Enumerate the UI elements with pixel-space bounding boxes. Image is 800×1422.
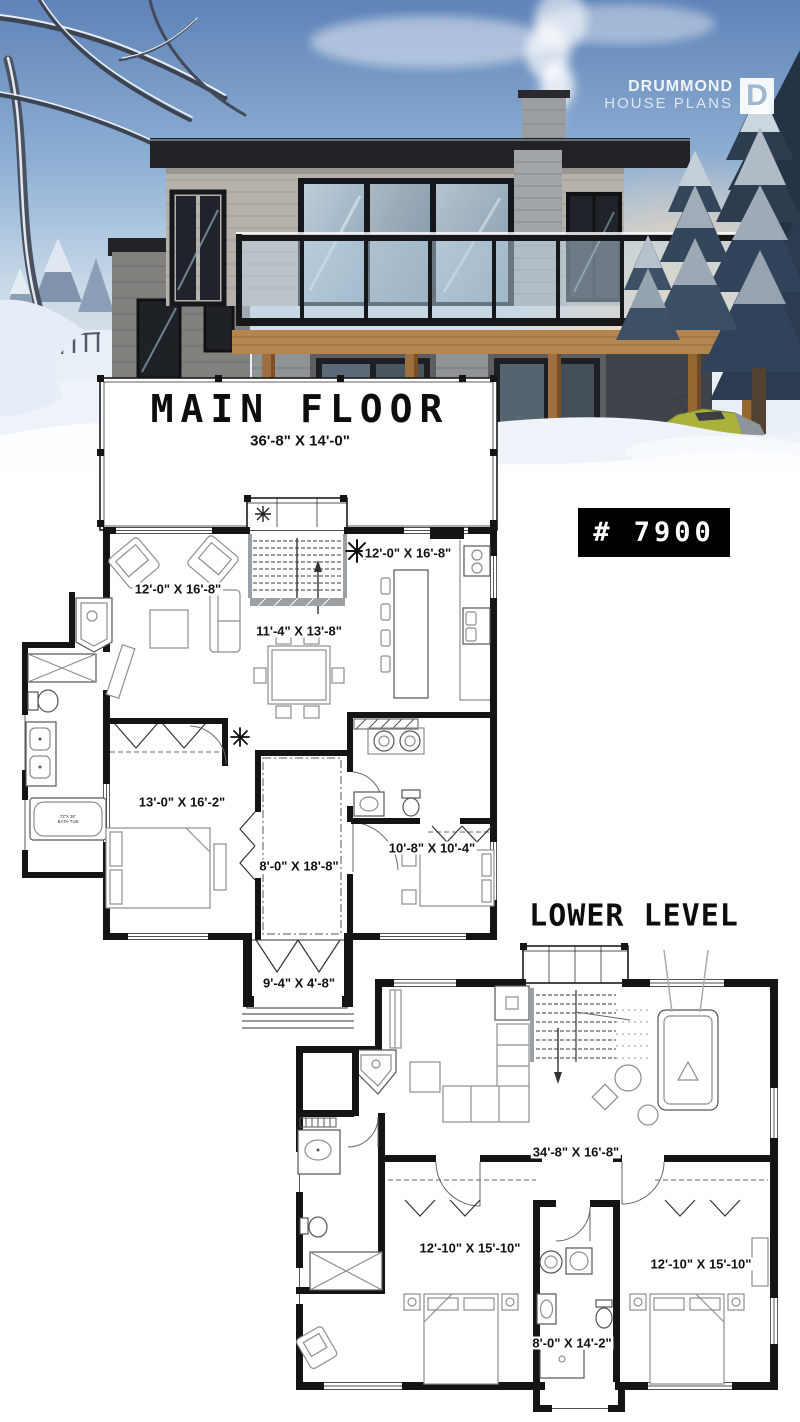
brand-subtitle: HOUSE PLANS: [604, 96, 733, 113]
room-dimension-bedroom-2: 10'-8" X 10'-4": [387, 842, 477, 855]
main-floor-title: MAIN FLOOR: [151, 387, 450, 431]
sectional-sofa: [443, 1086, 529, 1122]
laundry-fixtures: [368, 728, 424, 754]
plan-number: # 7900: [593, 517, 715, 548]
toilet: [402, 790, 420, 798]
powder-room-fixtures: [354, 790, 420, 816]
stairs: [248, 534, 347, 614]
covered-porch-outline: [263, 758, 341, 934]
round-table: [615, 1065, 641, 1091]
deck-wood-beam: [232, 330, 778, 354]
washer: [374, 731, 394, 751]
room-dimension-covered-porch: 8'-0" X 18'-8": [257, 860, 340, 873]
bed: [650, 1294, 724, 1384]
brand-name: DRUMMOND: [604, 79, 733, 96]
bathtub-label: 72"X 36" BATH-TUB: [58, 814, 79, 824]
room-dimension-master-bedroom: 13'-0" X 16'-2": [137, 796, 227, 809]
main-floor-overall-dimensions: 36'-8" X 14'-0": [250, 433, 350, 450]
fireplace: [495, 986, 529, 1020]
plan-number-badge: # 7900: [578, 508, 730, 557]
room-dimension-bedroom-4: 12'-10" X 15'-10": [649, 1258, 754, 1271]
room-dimension-bedroom-3: 12'-10" X 15'-10": [418, 1242, 523, 1255]
lower-level-title: LOWER LEVEL: [529, 899, 739, 934]
flat-roof: [150, 138, 690, 168]
pool-table: [658, 1010, 718, 1110]
dryer: [400, 731, 420, 751]
washer: [540, 1251, 562, 1273]
stair-bay: [520, 943, 628, 983]
stair-bay: [244, 495, 347, 532]
ceiling-light-icon: [231, 728, 249, 746]
dining-furniture: [254, 632, 344, 718]
closet-bifold-doors: [115, 724, 205, 748]
toilet: [596, 1300, 612, 1307]
master-bedroom-furniture: [106, 726, 226, 908]
bed: [420, 850, 494, 906]
plant-icon: [255, 506, 271, 522]
brand-logo: DRUMMOND HOUSE PLANS D: [604, 78, 774, 114]
room-dimension-dining: 11'-4" X 13'-8": [254, 625, 344, 638]
toilet: [28, 692, 38, 710]
room-dimension-bathroom: 8'-0" X 14'-2": [530, 1337, 613, 1350]
room-dimension-living: 12'-0" X 16'-8": [133, 583, 223, 596]
bedroom-2-furniture: [402, 850, 494, 906]
room-dimension-family-room: 34'-8" X 16'-8": [531, 1146, 621, 1159]
brand-monogram-icon: D: [740, 78, 774, 114]
shared-bathroom: [533, 1200, 620, 1382]
french-doors: [240, 812, 255, 880]
room-dimension-kitchen: 12'-0" X 16'-8": [363, 547, 453, 560]
brand-wordmark: DRUMMOND HOUSE PLANS: [604, 79, 733, 112]
page: DRUMMOND HOUSE PLANS D .w{fill:#141414}.…: [0, 0, 800, 1422]
bed: [424, 1294, 498, 1384]
bathtub-text: BATH-TUB: [58, 819, 79, 824]
living-room-furniture: [106, 534, 240, 698]
kitchen-island: [394, 570, 428, 698]
toilet: [300, 1218, 308, 1234]
